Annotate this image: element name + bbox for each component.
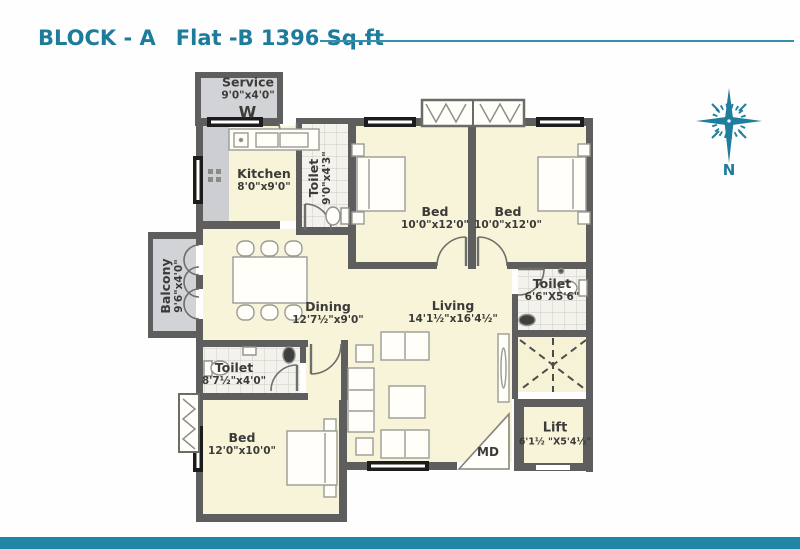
room-name: Lift <box>519 421 591 437</box>
washer-label: W <box>221 102 274 121</box>
main-door-label: MD <box>477 445 499 459</box>
compass-north-label: N <box>723 161 736 179</box>
room-dims: 14'1½"x16'4½" <box>408 313 498 326</box>
room-dims: 9'6"x4'0" <box>173 258 186 313</box>
dining-label: Dining 12'7½"x9'0" <box>292 299 364 327</box>
room-dims: 10'0"x12'0" <box>401 219 469 232</box>
toilet-bottom-label: Toilet 8'7½"x4'0" <box>202 360 266 388</box>
room-name: Balcony <box>158 258 173 313</box>
kitchen-label: Kitchen 8'0"x9'0" <box>237 166 291 194</box>
room-dims: 12'7½"x9'0" <box>292 314 364 327</box>
room-dims: 6'1½ "X5'4½" <box>519 436 591 447</box>
room-dims: 9'0"x4'3" <box>321 151 334 204</box>
room-name: Living <box>408 298 498 313</box>
room-name: Toilet <box>202 360 266 375</box>
room-name: Service <box>221 75 274 90</box>
bed-top-right-label: Bed 10'0"x12'0" <box>474 204 542 232</box>
room-dims: 8'7½"x4'0" <box>202 375 266 388</box>
room-dims: 8'0"x9'0" <box>237 181 291 194</box>
balcony-label: Balcony 9'6"x4'0" <box>158 258 186 313</box>
room-name: Kitchen <box>237 166 291 181</box>
room-dims: 12'0"x10'0" <box>208 445 276 458</box>
lift-label: Lift 6'1½ "X5'4½" <box>519 421 591 448</box>
room-name: Toilet <box>306 151 321 204</box>
bottom-accent-bar <box>0 537 800 549</box>
room-name: Bed <box>474 204 542 219</box>
room-name: Bed <box>401 204 469 219</box>
bed-bottom-label: Bed 12'0"x10'0" <box>208 430 276 458</box>
compass-icon <box>696 88 762 163</box>
floor-plan-page: BLOCK - A Flat -B 1396 Sq.ft <box>0 0 800 549</box>
room-name: Bed <box>208 430 276 445</box>
toilet-top-label: Toilet 9'0"x4'3" <box>306 151 334 204</box>
bed-top-left-label: Bed 10'0"x12'0" <box>401 204 469 232</box>
living-label: Living 14'1½"x16'4½" <box>408 298 498 326</box>
lift-door-notch <box>536 465 570 470</box>
toilet-right-label: Toilet 6'6"X5'6" <box>525 276 580 304</box>
room-dims: 6'6"X5'6" <box>525 291 580 304</box>
room-dims: 10'0"x12'0" <box>474 219 542 232</box>
service-label: Service 9'0"x4'0" W <box>221 75 274 122</box>
room-name: Toilet <box>525 276 580 291</box>
room-name: Dining <box>292 299 364 314</box>
floor-plan-drawing <box>0 0 800 549</box>
room-dims: 9'0"x4'0" <box>221 90 274 103</box>
